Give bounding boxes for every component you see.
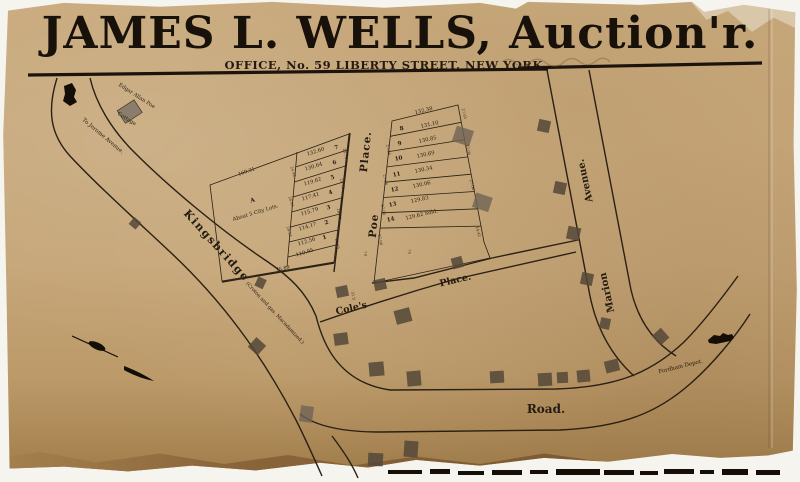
print-remnant	[722, 469, 748, 475]
parcel-a-desc: About 5 City Lots.	[231, 203, 279, 223]
building-marker	[368, 361, 384, 376]
east-lot-labels: 132.38 8 131.10 9 130.85 10 130.69 11 13…	[386, 106, 439, 224]
lot-length: 130.06	[412, 180, 431, 190]
torn-edge-print-remnants	[388, 469, 780, 475]
lot-number: 3	[326, 205, 332, 212]
marion-avenue-east-line	[589, 70, 676, 356]
building-marker	[599, 317, 611, 330]
lot-number: 12	[390, 186, 399, 194]
print-remnant	[756, 470, 780, 475]
building-marker	[299, 405, 314, 423]
frontage-dim: 26.75	[339, 178, 346, 190]
building-marker	[490, 371, 505, 384]
street-label-coles: Cole's	[335, 300, 368, 318]
print-remnant	[604, 470, 634, 475]
building-marker	[566, 226, 581, 241]
lot-length: 115.79	[300, 207, 319, 218]
building-marker	[393, 307, 412, 325]
lot-number: 1	[322, 235, 328, 242]
building-marker	[129, 217, 142, 230]
header-rule-left	[28, 69, 548, 75]
building-marker	[537, 119, 551, 133]
lot-length: 130.34	[414, 165, 434, 175]
print-remnant	[388, 470, 422, 474]
street-width-dim: 31.9	[350, 291, 357, 301]
pen-dash-mark	[124, 366, 154, 381]
frontage-dim: 27.06	[385, 144, 392, 156]
frontage-dim: 27.06	[382, 174, 389, 186]
building-marker	[333, 332, 349, 346]
lot-number: 9	[397, 141, 402, 148]
frontage-dim: 27.06	[465, 144, 473, 156]
marion-avenue-west-line	[547, 70, 634, 376]
lot-length: 130.85	[418, 135, 437, 145]
lot-number: 4	[328, 190, 334, 197]
lot-number: 14	[386, 216, 395, 224]
kingsbridge-road-ne-line	[90, 78, 738, 390]
lot-south-dim: 110.95	[295, 248, 314, 259]
lot-length: 129.83	[410, 195, 429, 205]
ink-blot-mark	[63, 83, 77, 106]
lot-number: 11	[392, 171, 401, 179]
print-remnant	[640, 471, 658, 475]
building-marker	[553, 181, 567, 195]
print-remnant	[700, 470, 714, 474]
frontage-dim: 26.75	[334, 238, 341, 250]
frontage-dim: 26.42	[289, 166, 297, 178]
lot-number: 8	[399, 126, 404, 133]
east-lot-divider	[380, 226, 481, 228]
building-marker	[538, 373, 553, 387]
print-remnant	[664, 469, 694, 474]
building-marker	[406, 370, 421, 386]
building-marker	[373, 278, 387, 291]
print-remnant	[530, 470, 548, 474]
building-marker	[580, 272, 594, 286]
frontage-dim: 26.75	[342, 148, 349, 160]
frontage-dims: 26.42 26.41 26.34 26.75 26.75 26.76 26.7…	[285, 108, 482, 301]
lot-length: 117.41	[301, 192, 320, 203]
lot-length: 114.17	[298, 222, 317, 233]
map-canvas: Kingsbridge (Croton and gas. Macadamized…	[0, 0, 800, 482]
lot-number: 7	[334, 145, 340, 152]
lot-length: 129.62 Sold.	[405, 208, 439, 221]
lot-length: 112.56	[297, 237, 316, 248]
lot-length: 130.69	[416, 150, 435, 160]
frontage-dim: 26.41	[287, 196, 295, 208]
to-jerome-avenue-label: To Jerome Avenue.	[81, 117, 125, 155]
street-label-marion-avenue: Avenue.	[576, 158, 596, 204]
street-label-coles-place: Place.	[439, 272, 473, 290]
building-marker	[557, 372, 569, 384]
lot-length: 132.60	[306, 147, 325, 158]
frontage-dim: 27.65	[461, 108, 469, 120]
kingsbridge-road-sw-line	[51, 78, 322, 476]
lot-number: 5	[330, 175, 336, 182]
building-marker	[335, 285, 349, 298]
building-marker	[604, 358, 620, 373]
frontage-dim: 26.34	[285, 226, 293, 238]
parcel-a-label: A	[248, 196, 256, 204]
lot-number: 6	[332, 160, 338, 167]
street-end-dim: 75	[407, 249, 413, 255]
building-marker	[652, 328, 670, 346]
building-marker	[248, 337, 266, 355]
street-note-kingsbridge: (Croton and gas. Macadamized.)	[244, 280, 306, 345]
lot-number: 10	[394, 155, 403, 163]
print-remnant	[492, 470, 522, 475]
auction-map-sheet: { "header": { "title": "JAMES L. WELLS, …	[0, 0, 800, 482]
building-marker	[577, 369, 591, 382]
road-continuation-stub	[332, 436, 358, 478]
street-label-poe-place: Place.	[358, 130, 374, 172]
print-remnant	[430, 469, 450, 474]
block-north-dim: 132.38	[414, 106, 433, 116]
street-label-marion: Marion	[598, 271, 617, 314]
road-south-line	[300, 314, 750, 432]
print-remnant	[458, 471, 484, 475]
header-rule-right	[518, 63, 762, 68]
parcel-a-north-dim: 160.31	[237, 166, 255, 177]
west-lot-labels: 132.60 7 130.64 6 119.62 5 117.41 4 115.…	[295, 145, 339, 259]
street-end-dim: 70	[363, 251, 369, 257]
street-label-road: Road.	[527, 402, 565, 416]
building-marker	[254, 276, 266, 289]
building-marker	[403, 441, 418, 458]
lot-number: 13	[388, 201, 397, 209]
building-marker	[452, 126, 474, 147]
print-remnant	[556, 469, 600, 475]
lot-number: 2	[324, 220, 330, 227]
frontage-dim: 27.06	[469, 179, 477, 191]
fordham-depot-label: Fordham Depot.	[658, 359, 704, 376]
frontage-dim: 26.76	[336, 208, 343, 220]
building-marker	[368, 453, 384, 467]
